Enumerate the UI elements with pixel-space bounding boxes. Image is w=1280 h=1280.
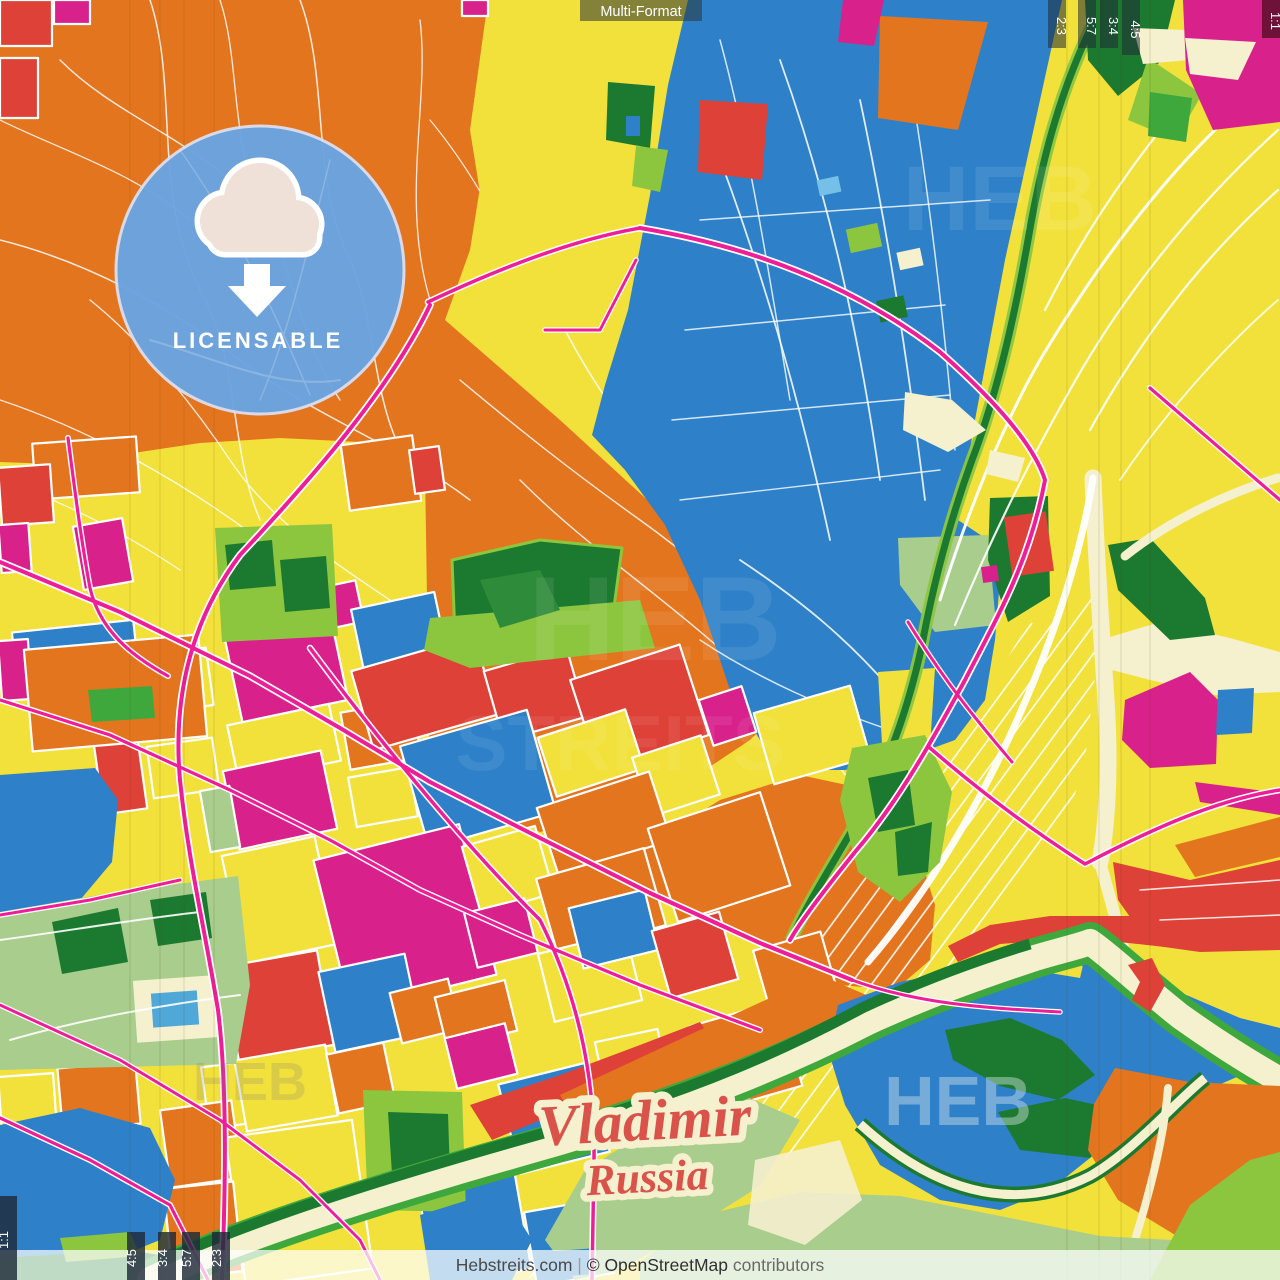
svg-text:HEB: HEB <box>884 1062 1032 1140</box>
svg-text:HEB: HEB <box>193 1052 307 1112</box>
svg-text:2:3: 2:3 <box>209 1249 224 1267</box>
svg-text:4:5: 4:5 <box>1128 20 1143 38</box>
svg-text:4:5: 4:5 <box>124 1249 139 1267</box>
svg-text:HEB: HEB <box>903 148 1097 250</box>
svg-text:Hebstreits.com | © OpenStreetM: Hebstreits.com | © OpenStreetMap contrib… <box>456 1255 825 1275</box>
svg-text:1:1: 1:1 <box>0 1231 11 1249</box>
svg-text:HEB: HEB <box>528 552 781 686</box>
svg-text:STREITS: STREITS <box>455 699 784 787</box>
svg-text:5:7: 5:7 <box>1084 17 1099 35</box>
svg-text:5:7: 5:7 <box>179 1249 194 1267</box>
svg-text:Russia: Russia <box>584 1150 710 1205</box>
svg-text:2:3: 2:3 <box>1054 17 1069 35</box>
svg-text:LICENSABLE: LICENSABLE <box>173 328 344 353</box>
svg-text:3:4: 3:4 <box>1106 17 1121 35</box>
svg-text:Multi-Format: Multi-Format <box>600 4 681 20</box>
svg-text:Vladimir: Vladimir <box>537 1082 753 1158</box>
svg-text:1:1: 1:1 <box>1268 12 1280 30</box>
svg-text:3:4: 3:4 <box>155 1249 170 1267</box>
